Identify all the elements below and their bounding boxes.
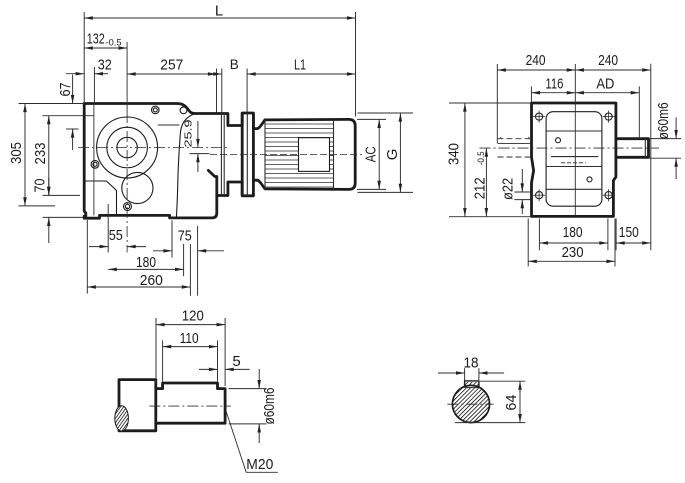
svg-text:120: 120 <box>182 308 204 325</box>
svg-text:305: 305 <box>8 142 25 164</box>
svg-text:-0.5: -0.5 <box>106 38 122 49</box>
svg-text:5: 5 <box>232 353 240 370</box>
svg-text:233: 233 <box>32 143 49 165</box>
svg-text:-0.5: -0.5 <box>476 151 487 165</box>
svg-text:AD: AD <box>596 75 614 92</box>
svg-text:230: 230 <box>562 244 584 261</box>
svg-text:132: 132 <box>87 30 105 47</box>
svg-text:64: 64 <box>503 395 520 411</box>
svg-text:32: 32 <box>98 56 112 73</box>
svg-text:55: 55 <box>109 227 123 244</box>
svg-text:25.9: 25.9 <box>183 119 195 147</box>
svg-text:240: 240 <box>598 52 618 69</box>
svg-text:B: B <box>230 57 239 72</box>
svg-text:116: 116 <box>545 75 563 92</box>
svg-text:AC: AC <box>363 146 380 162</box>
svg-text:150: 150 <box>619 224 639 241</box>
svg-text:75: 75 <box>178 227 192 244</box>
svg-text:L: L <box>215 2 223 19</box>
svg-text:M20: M20 <box>246 456 273 473</box>
svg-text:260: 260 <box>140 272 163 289</box>
svg-text:ø60m6: ø60m6 <box>655 102 672 139</box>
svg-text:212: 212 <box>471 177 488 199</box>
svg-text:257: 257 <box>160 56 183 73</box>
svg-text:240: 240 <box>526 52 546 69</box>
svg-text:67: 67 <box>57 83 74 97</box>
svg-text:110: 110 <box>180 330 199 347</box>
svg-text:ø60m6: ø60m6 <box>261 388 278 425</box>
svg-text:L1: L1 <box>294 57 306 74</box>
svg-text:ø22: ø22 <box>499 178 516 200</box>
svg-text:340: 340 <box>446 143 463 165</box>
svg-text:G: G <box>384 149 401 161</box>
svg-text:18: 18 <box>464 355 479 372</box>
svg-text:180: 180 <box>563 224 583 241</box>
svg-text:180: 180 <box>136 254 156 271</box>
svg-text:70: 70 <box>31 179 48 193</box>
